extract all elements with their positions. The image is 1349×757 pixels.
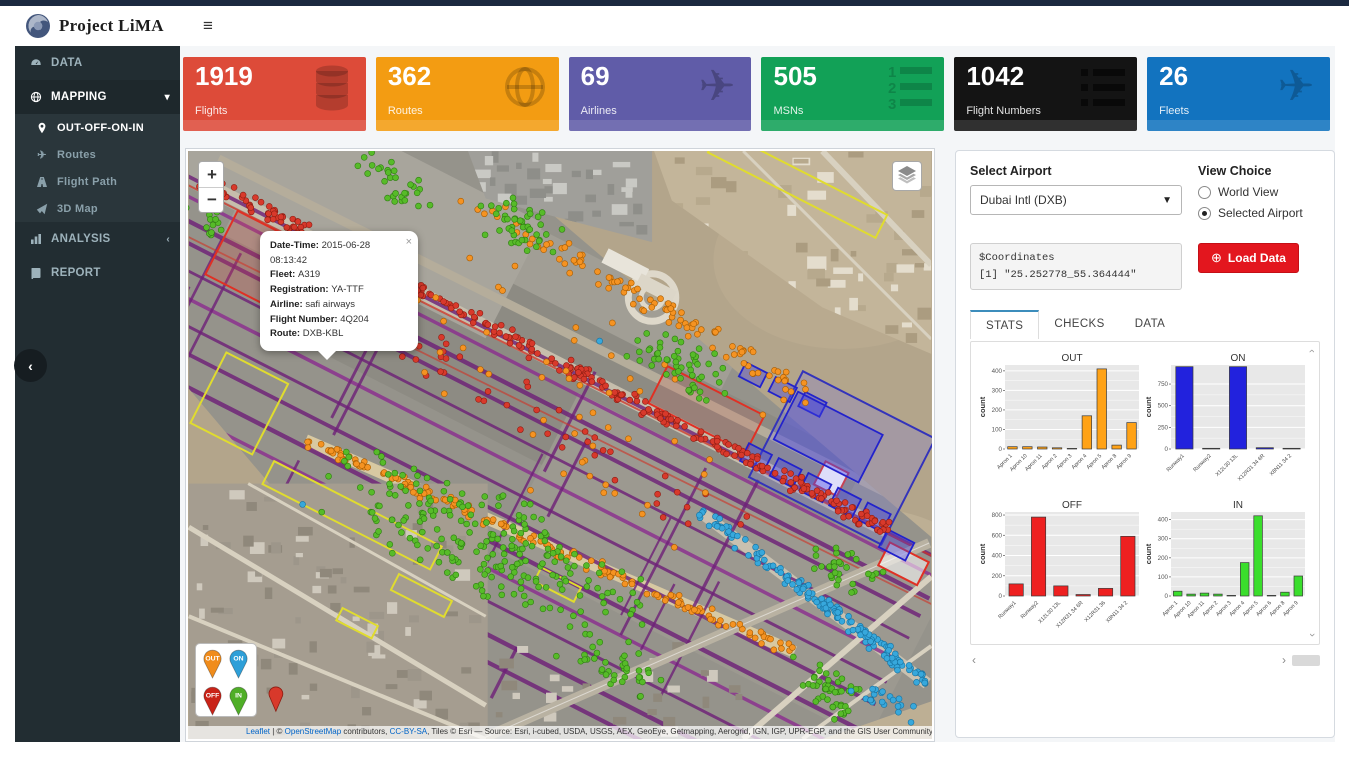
stats-tabs: STATSCHECKSDATA bbox=[970, 310, 1320, 339]
charts-grid: 0100200300400Apron 1Apron 10Apron 11Apro… bbox=[977, 346, 1303, 640]
dashboard-icon bbox=[29, 56, 43, 70]
stat-value: 1919 bbox=[195, 61, 253, 92]
scroll-down-icon[interactable]: › bbox=[1306, 629, 1318, 641]
sidebar: DATAMAPPING▾OUT-OFF-ON-IN✈RoutesFlight P… bbox=[15, 46, 180, 742]
sidebar-item-analysis[interactable]: ANALYSIS‹ bbox=[15, 222, 180, 256]
sidebar-item-out-off-on-in[interactable]: OUT-OFF-ON-IN bbox=[15, 114, 180, 141]
legend-pin-off: OFF bbox=[201, 685, 226, 721]
popup-content: Date-Time: 2015-06-28 08:13:42Fleet: A31… bbox=[270, 239, 408, 342]
svg-text:IN: IN bbox=[1233, 500, 1243, 511]
svg-text:count: count bbox=[978, 543, 987, 564]
svg-text:2: 2 bbox=[888, 80, 896, 97]
license-link[interactable]: CC-BY-SA bbox=[390, 727, 428, 736]
sidebar-item-routes[interactable]: ✈Routes bbox=[15, 141, 180, 168]
attribution-text: , Tiles © Esri — Source: Esri, i-cubed, … bbox=[427, 727, 932, 736]
tab-stats[interactable]: STATS bbox=[970, 310, 1039, 339]
svg-text:300: 300 bbox=[992, 387, 1003, 394]
app-title: Project LiMA bbox=[59, 16, 164, 36]
svg-text:OUT: OUT bbox=[1061, 353, 1082, 364]
card-footer-band bbox=[376, 120, 559, 131]
chart-cell-on: 0250500750Runway1Runway2X12L30 13LX12R31… bbox=[1143, 346, 1309, 493]
svg-text:100: 100 bbox=[992, 426, 1003, 433]
horizontal-scrollbar: ‹ › bbox=[970, 653, 1320, 667]
sidebar-item-label: DATA bbox=[51, 57, 170, 69]
sidebar-item-flight-path[interactable]: Flight Path bbox=[15, 168, 180, 195]
sidebar-item-label: REPORT bbox=[51, 267, 170, 279]
zoom-out-button[interactable]: − bbox=[199, 187, 224, 212]
stat-label: Airlines bbox=[581, 105, 617, 117]
chart-cell-off: 0200400600800Runway1Runway2X12L30 13LX12… bbox=[977, 493, 1143, 640]
legend-pin-on: ON bbox=[227, 648, 252, 684]
send-icon bbox=[35, 202, 49, 216]
svg-text:100: 100 bbox=[1158, 573, 1169, 580]
radio-label: World View bbox=[1218, 185, 1278, 199]
select-airport-label: Select Airport bbox=[970, 164, 1198, 178]
svg-text:OFF: OFF bbox=[1062, 500, 1082, 511]
legend-pin-in: IN bbox=[227, 685, 252, 721]
radio-label: Selected Airport bbox=[1218, 206, 1303, 220]
radio-dot bbox=[1198, 207, 1211, 220]
sidebar-item-mapping[interactable]: MAPPING▾ bbox=[15, 80, 180, 114]
stat-label: Routes bbox=[388, 105, 423, 117]
leaflet-link[interactable]: Leaflet bbox=[246, 727, 270, 736]
svg-text:0: 0 bbox=[999, 446, 1003, 453]
hamburger-icon[interactable]: ≡ bbox=[193, 13, 223, 39]
tab-data[interactable]: DATA bbox=[1120, 310, 1181, 339]
popup-field: Fleet: A319 bbox=[270, 268, 408, 283]
svg-text:200: 200 bbox=[1158, 554, 1169, 561]
svg-text:0: 0 bbox=[1165, 446, 1169, 453]
chart-off: 0200400600800Runway1Runway2X12L30 13LX12… bbox=[977, 498, 1143, 636]
plane-icon: ✈ bbox=[1270, 61, 1322, 113]
svg-text:OFF: OFF bbox=[206, 693, 220, 700]
svg-text:750: 750 bbox=[1158, 381, 1169, 388]
svg-text:400: 400 bbox=[992, 367, 1003, 374]
map-marker-icon bbox=[35, 121, 49, 135]
svg-text:250: 250 bbox=[1158, 424, 1169, 431]
map-attribution: Leaflet | © OpenStreetMap contributors, … bbox=[188, 726, 932, 739]
svg-text:0: 0 bbox=[1165, 593, 1169, 600]
stat-value: 69 bbox=[581, 61, 610, 92]
stat-value: 1042 bbox=[966, 61, 1024, 92]
sidebar-item-data[interactable]: DATA bbox=[15, 46, 180, 80]
sidebar-submenu: OUT-OFF-ON-IN✈RoutesFlight Path3D Map bbox=[15, 114, 180, 222]
svg-text:IN: IN bbox=[235, 693, 242, 700]
svg-text:count: count bbox=[978, 396, 987, 417]
load-data-label: Load Data bbox=[1228, 251, 1286, 265]
popup-field: Airline: safi airways bbox=[270, 298, 408, 313]
osm-link[interactable]: OpenStreetMap bbox=[285, 727, 341, 736]
ordered-list-icon: 123 bbox=[884, 61, 936, 113]
sidebar-collapse-button[interactable]: ‹ bbox=[14, 349, 47, 382]
stat-label: MSNs bbox=[773, 105, 803, 117]
zoom-in-button[interactable]: + bbox=[199, 162, 224, 187]
map-zoom-control: + − bbox=[198, 161, 224, 213]
chevron-down-icon: ▾ bbox=[165, 92, 170, 103]
coordinates-line1: $Coordinates bbox=[979, 250, 1173, 267]
jet-icon: ✈ bbox=[691, 61, 743, 113]
svg-text:300: 300 bbox=[1158, 535, 1169, 542]
page: Project LiMA ≡ DATAMAPPING▾OUT-OFF-ON-IN… bbox=[0, 0, 1349, 757]
caret-down-icon: ▼ bbox=[1162, 195, 1172, 206]
card-footer-band bbox=[183, 120, 366, 131]
svg-text:600: 600 bbox=[992, 532, 1003, 539]
stat-value: 26 bbox=[1159, 61, 1188, 92]
sidebar-item-label: Routes bbox=[57, 149, 170, 161]
book-icon bbox=[29, 266, 43, 280]
svg-text:OUT: OUT bbox=[205, 656, 220, 663]
coordinates-line2: [1] "25.252778_55.364444" bbox=[979, 267, 1173, 284]
popup-field: Route: DXB-KBL bbox=[270, 327, 408, 342]
attribution-text: | © bbox=[270, 727, 285, 736]
map[interactable]: + − × Date-Time: 2015-06-28 08:13:42Flee… bbox=[188, 151, 932, 739]
map-legend: OUTONOFFIN bbox=[195, 643, 257, 717]
stat-cards-row: 1919Flights362Routes69✈Airlines505123MSN… bbox=[183, 57, 1330, 131]
app-header: Project LiMA ≡ bbox=[15, 6, 1335, 46]
chart-out: 0100200300400Apron 1Apron 10Apron 11Apro… bbox=[977, 351, 1143, 489]
svg-text:800: 800 bbox=[992, 512, 1003, 519]
tab-checks[interactable]: CHECKS bbox=[1039, 310, 1119, 339]
svg-text:3: 3 bbox=[888, 96, 896, 113]
stat-card-flights: 1919Flights bbox=[183, 57, 366, 131]
globe-icon bbox=[29, 90, 43, 104]
sidebar-item-3d-map[interactable]: 3D Map bbox=[15, 195, 180, 222]
layers-control-button[interactable] bbox=[892, 161, 922, 191]
scroll-right-icon[interactable]: › bbox=[1282, 653, 1286, 667]
view-choice-label: View Choice bbox=[1198, 164, 1320, 178]
app-logo: Project LiMA bbox=[25, 10, 195, 42]
chart-in: 0100200300400Apron 1Apron 10Apron 11Apro… bbox=[1143, 498, 1309, 636]
popup-close-icon[interactable]: × bbox=[406, 234, 412, 251]
scroll-left-icon[interactable]: ‹ bbox=[972, 653, 976, 667]
stat-label: Fleets bbox=[1159, 105, 1189, 117]
stat-card-fleets: 26✈Fleets bbox=[1147, 57, 1330, 131]
attribution-text: contributors, bbox=[341, 727, 389, 736]
svg-text:count: count bbox=[1144, 543, 1153, 564]
layers-icon bbox=[897, 164, 917, 189]
plane-icon: ✈ bbox=[35, 148, 49, 162]
airport-select[interactable]: Dubai Intl (DXB) ▼ bbox=[970, 185, 1182, 215]
bar-chart-icon bbox=[29, 232, 43, 246]
popup-field: Flight Number: 4Q204 bbox=[270, 313, 408, 328]
svg-text:1: 1 bbox=[888, 64, 896, 81]
marker-popup: × Date-Time: 2015-06-28 08:13:42Fleet: A… bbox=[260, 231, 418, 351]
content-area: 1919Flights362Routes69✈Airlines505123MSN… bbox=[180, 46, 1335, 742]
charts-panel: 0100200300400Apron 1Apron 10Apron 11Apro… bbox=[970, 341, 1320, 645]
sidebar-item-label: OUT-OFF-ON-IN bbox=[57, 122, 170, 134]
svg-text:400: 400 bbox=[992, 552, 1003, 559]
stat-card-msns: 505123MSNs bbox=[761, 57, 944, 131]
scroll-up-icon[interactable]: › bbox=[1306, 345, 1318, 357]
chart-on: 0250500750Runway1Runway2X12L30 13LX12R31… bbox=[1143, 351, 1309, 489]
sidebar-item-label: 3D Map bbox=[57, 203, 170, 215]
svg-text:count: count bbox=[1144, 396, 1153, 417]
card-footer-band bbox=[954, 120, 1137, 131]
coordinates-output: $Coordinates [1] "25.252778_55.364444" bbox=[970, 243, 1182, 290]
stat-label: Flights bbox=[195, 105, 227, 117]
svg-text:200: 200 bbox=[992, 572, 1003, 579]
plus-circle-icon: ⊕ bbox=[1211, 250, 1222, 266]
load-data-button[interactable]: ⊕ Load Data bbox=[1198, 243, 1299, 273]
svg-text:ON: ON bbox=[1231, 353, 1246, 364]
airport-select-value: Dubai Intl (DXB) bbox=[980, 193, 1067, 207]
legend-pin-out: OUT bbox=[201, 648, 226, 684]
radio-dot bbox=[1198, 186, 1211, 199]
svg-text:400: 400 bbox=[1158, 516, 1169, 523]
card-footer-band bbox=[569, 120, 752, 131]
database-icon bbox=[306, 61, 358, 113]
stat-label: Flight Numbers bbox=[966, 105, 1041, 117]
road-icon bbox=[35, 175, 49, 189]
sidebar-item-label: MAPPING bbox=[51, 91, 157, 103]
svg-text:200: 200 bbox=[992, 406, 1003, 413]
popup-field: Registration: YA-TTF bbox=[270, 283, 408, 298]
svg-text:0: 0 bbox=[999, 593, 1003, 600]
airport-panel: Select Airport Dubai Intl (DXB) ▼ View C… bbox=[955, 150, 1335, 738]
svg-text:500: 500 bbox=[1158, 402, 1169, 409]
stat-value: 362 bbox=[388, 61, 431, 92]
sidebar-item-label: ANALYSIS bbox=[51, 233, 158, 245]
chart-cell-out: 0100200300400Apron 1Apron 10Apron 11Apro… bbox=[977, 346, 1143, 493]
stat-card-airlines: 69✈Airlines bbox=[569, 57, 752, 131]
stat-value: 505 bbox=[773, 61, 816, 92]
sidebar-item-label: Flight Path bbox=[57, 176, 170, 188]
map-card: + − × Date-Time: 2015-06-28 08:13:42Flee… bbox=[185, 148, 935, 742]
chart-cell-in: 0100200300400Apron 1Apron 10Apron 11Apro… bbox=[1143, 493, 1309, 640]
svg-text:ON: ON bbox=[233, 656, 243, 663]
stat-card-routes: 362Routes bbox=[376, 57, 559, 131]
scrollbar-thumb[interactable] bbox=[1292, 655, 1320, 666]
popup-field: Date-Time: 2015-06-28 08:13:42 bbox=[270, 239, 408, 268]
logo-swirl-icon bbox=[25, 13, 51, 39]
chevron-left-icon: ‹ bbox=[166, 234, 170, 245]
view-choice-radio-group: World ViewSelected Airport bbox=[1198, 185, 1320, 220]
radio-selected-airport[interactable]: Selected Airport bbox=[1198, 206, 1320, 220]
svg-text:✈: ✈ bbox=[37, 149, 47, 161]
card-footer-band bbox=[1147, 120, 1330, 131]
list-icon bbox=[1077, 61, 1129, 113]
svg-text:✈: ✈ bbox=[1278, 62, 1315, 111]
card-footer-band bbox=[761, 120, 944, 131]
globe-icon bbox=[499, 61, 551, 113]
stat-card-flight-numbers: 1042Flight Numbers bbox=[954, 57, 1137, 131]
sidebar-item-report[interactable]: REPORT bbox=[15, 256, 180, 290]
svg-text:✈: ✈ bbox=[699, 62, 736, 111]
radio-world-view[interactable]: World View bbox=[1198, 185, 1320, 199]
